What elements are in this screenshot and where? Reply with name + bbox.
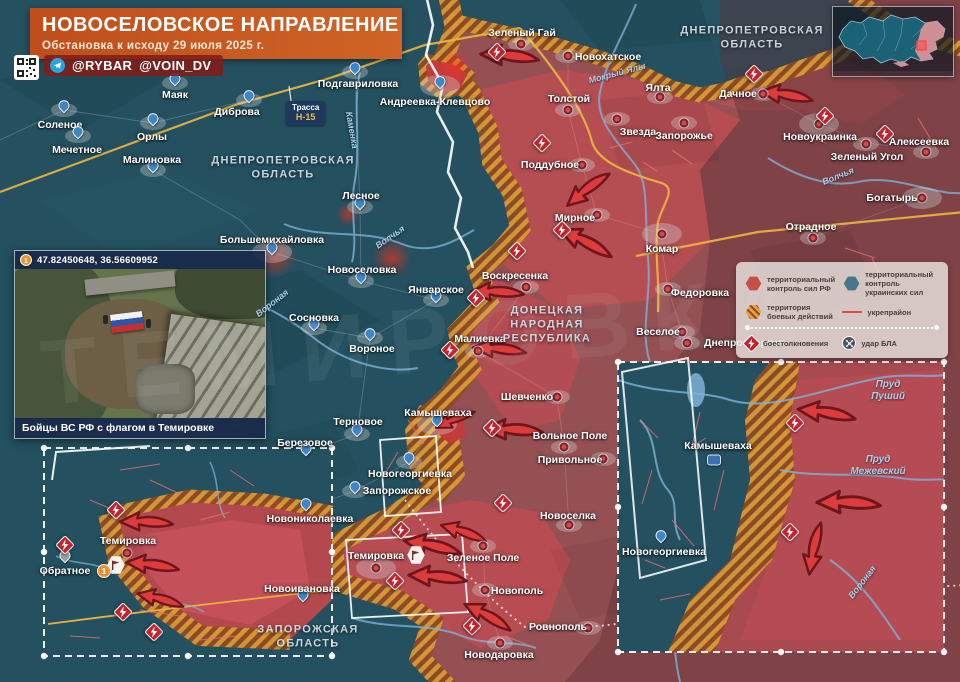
photo-inset: 1 47.82450648, 36.56609952 Бойцы ВС РФ с…	[14, 250, 266, 439]
map-legend: территориальный контроль сил РФ территор…	[736, 262, 948, 358]
legend-label: удар БЛА	[861, 339, 896, 348]
legend-label: территориальный контроль украинских сил	[865, 270, 939, 297]
road-sign-word: Трасса	[292, 103, 319, 112]
qr-code[interactable]	[14, 55, 39, 80]
handle-voin-dv[interactable]: @VOIN_DV	[139, 58, 211, 73]
inset-temirovka	[44, 446, 332, 656]
drone-photo	[15, 269, 265, 418]
page-subtitle: Обстановка к исходу 29 июля 2025 г.	[42, 40, 390, 52]
qr-pattern	[16, 57, 37, 78]
road-sign-n15: Трасса Н-15	[286, 101, 325, 125]
title-block: НОВОСЕЛОВСКОЕ НАПРАВЛЕНИЕ Обстановка к и…	[30, 8, 402, 59]
current-area-marker	[917, 41, 926, 50]
russian-flag	[110, 311, 144, 333]
combat-zone-hex-icon	[745, 305, 762, 320]
ukrep-line-icon	[842, 311, 862, 314]
photo-coords-bar: 1 47.82450648, 36.56609952	[15, 251, 265, 269]
legend-label: территория боевых действий	[767, 303, 834, 321]
legend-divider	[747, 327, 937, 329]
photo-badge: 1	[20, 254, 32, 266]
ua-control-hex-icon	[843, 276, 860, 291]
photo-caption-bar: Бойцы ВС РФ с флагом в Темировке	[15, 418, 265, 438]
drone-icon	[842, 336, 856, 350]
photo-coordinates: 47.82450648, 36.56609952	[37, 255, 158, 266]
page-title: НОВОСЕЛОВСКОЕ НАПРАВЛЕНИЕ	[42, 14, 390, 37]
clash-icon	[742, 334, 760, 352]
telegram-strip: @RYBAR @VOIN_DV	[44, 55, 223, 76]
telegram-icon	[50, 58, 65, 73]
situation-map-poster: НОВОСЕЛОВСКОЕ НАПРАВЛЕНИЕ Обстановка к и…	[0, 0, 960, 682]
ukraine-minimap	[832, 6, 954, 77]
inset-kamyshevakha	[618, 358, 944, 652]
legend-label: территориальный контроль сил РФ	[767, 275, 835, 293]
legend-label: укрепрайон	[867, 308, 911, 317]
photo-caption: Бойцы ВС РФ с флагом в Темировке	[22, 422, 214, 434]
road-sign-number: Н-15	[292, 112, 319, 122]
handle-rybar[interactable]: @RYBAR	[72, 58, 132, 73]
legend-label: боестолкновения	[763, 339, 828, 348]
rf-control-hex-icon	[745, 276, 762, 291]
